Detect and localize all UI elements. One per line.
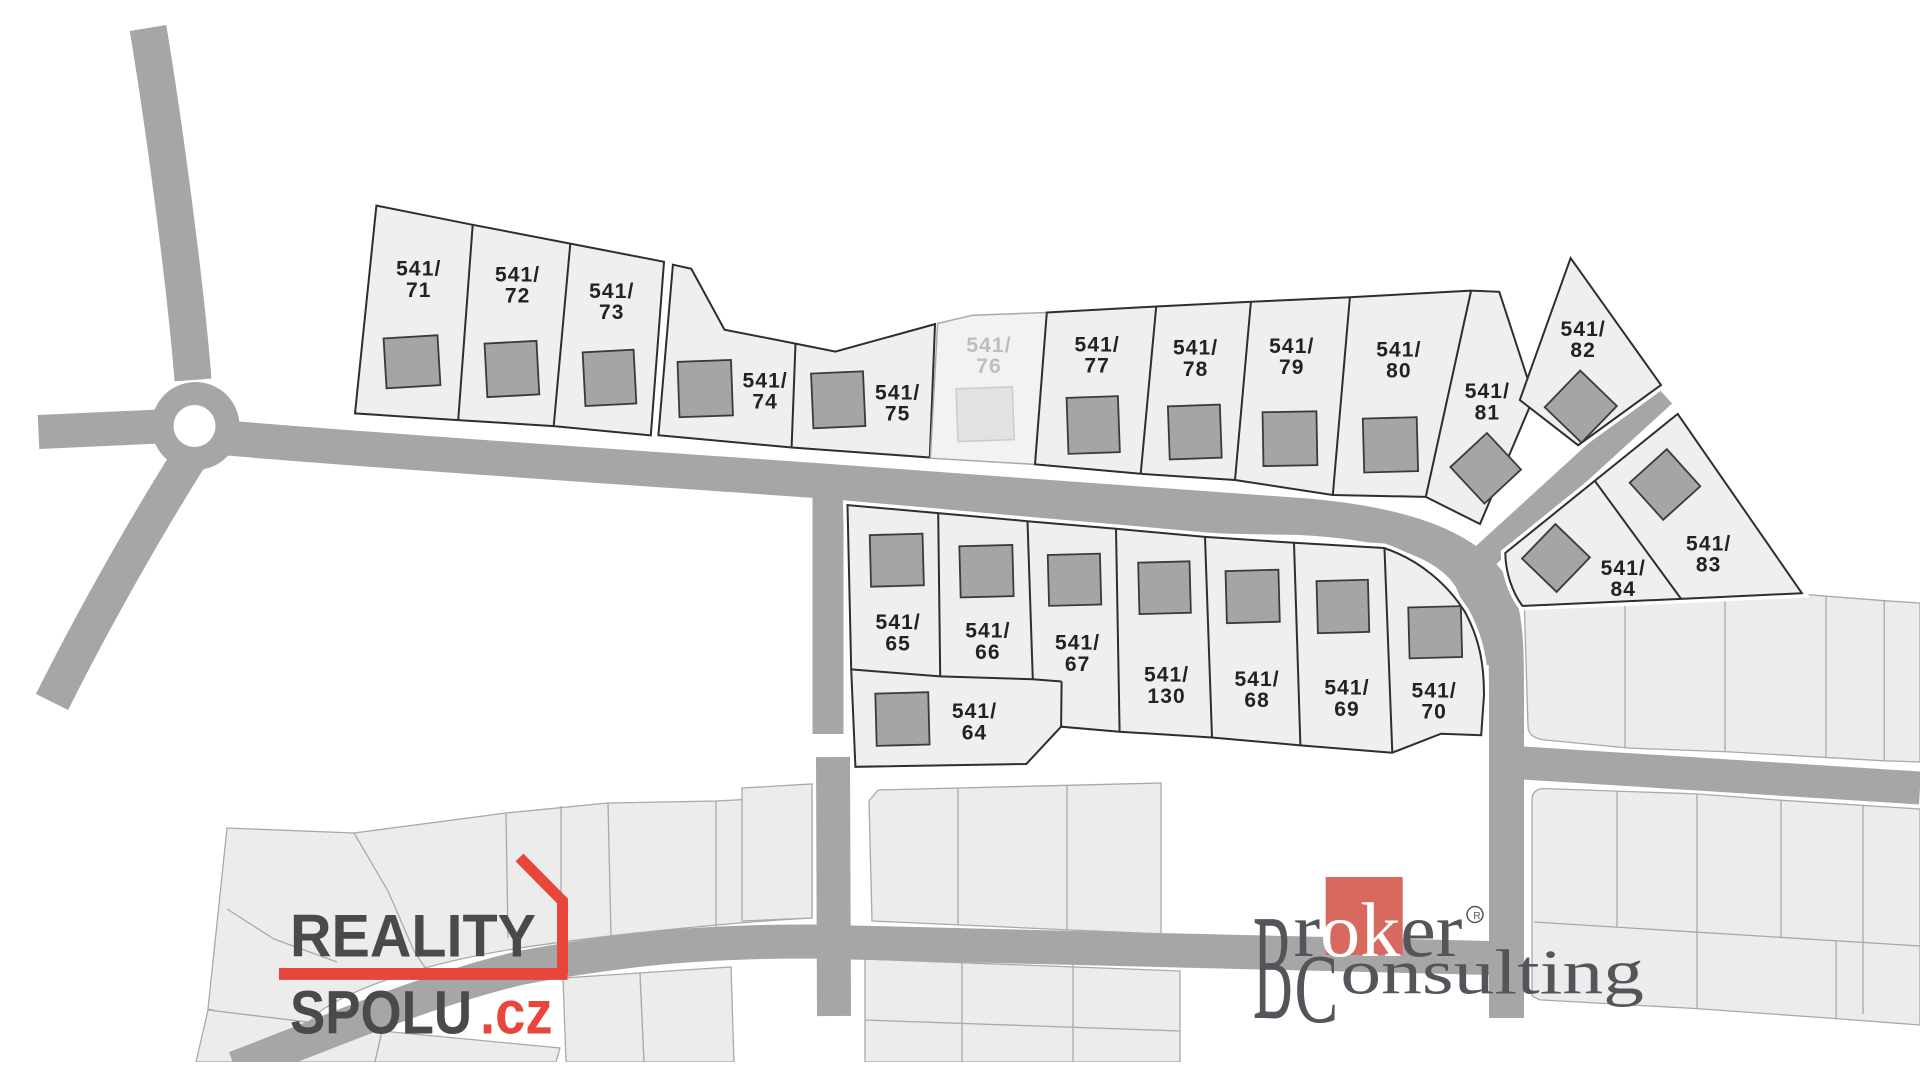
svg-text:REALITY: REALITY	[290, 903, 536, 970]
svg-text:541/130: 541/130	[1144, 664, 1189, 708]
svg-text:.cz: .cz	[480, 979, 553, 1047]
svg-text:R: R	[1473, 911, 1480, 922]
svg-text:SPOLU: SPOLU	[290, 979, 472, 1047]
svg-text:C: C	[1295, 935, 1339, 1044]
svg-text:onsulting: onsulting	[1340, 937, 1644, 1008]
svg-text:B: B	[1253, 884, 1293, 1051]
